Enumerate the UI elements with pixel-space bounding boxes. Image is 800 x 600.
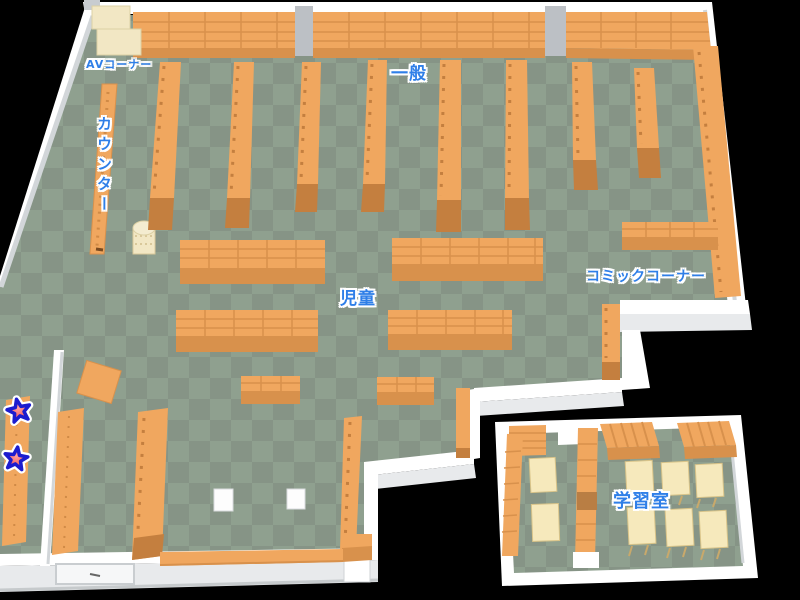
chair (214, 489, 233, 511)
slat-shelf (600, 422, 660, 460)
library-floor-map: AVコーナー カウンター 一般 児童 コミックコーナー 学習室 (0, 0, 800, 600)
entrance-door[interactable] (56, 564, 134, 584)
label-counter[interactable]: カウンター (94, 116, 115, 246)
chair (287, 489, 305, 509)
label-study-room[interactable]: 学習室 (613, 487, 670, 513)
label-comic-corner[interactable]: コミックコーナー (586, 266, 706, 286)
top-wall-shelves (133, 12, 712, 60)
study-table (531, 504, 559, 542)
study-table (529, 457, 557, 492)
label-general[interactable]: 一般 (391, 59, 427, 84)
slat-shelf (677, 421, 737, 459)
floor-map-canvas (0, 0, 800, 600)
label-av-corner[interactable]: AVコーナー (86, 56, 152, 72)
label-children[interactable]: 児童 (340, 284, 376, 309)
